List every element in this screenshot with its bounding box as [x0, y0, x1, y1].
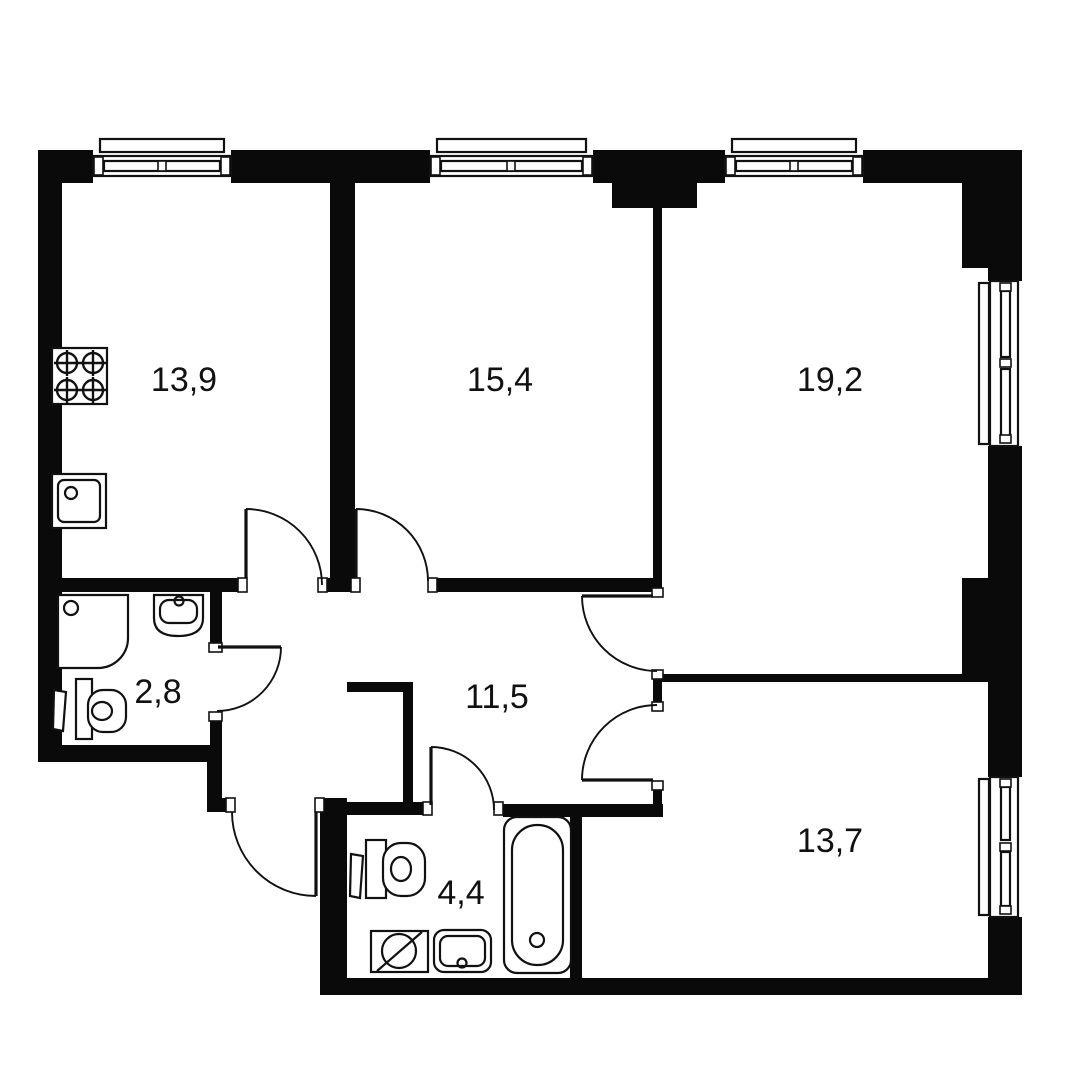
- towel-rail-icon: [53, 690, 66, 731]
- window-glazing: [1001, 787, 1010, 840]
- area-label-bathroom: 4,4: [437, 874, 484, 912]
- window-sill: [732, 139, 856, 152]
- door-entrance: [232, 812, 316, 896]
- wall-top-pier: [612, 183, 697, 208]
- wall-right-pier-top: [962, 150, 988, 268]
- wall-hall-bottom-b: [503, 804, 663, 817]
- window-sill: [979, 779, 989, 915]
- window-room-right: [725, 139, 863, 183]
- kitchen-sink-icon: [52, 474, 106, 528]
- window-room-right-side: [979, 281, 1022, 446]
- window-glazing: [1001, 852, 1010, 906]
- wall-bottom: [320, 978, 1022, 995]
- window-glazing: [1001, 369, 1010, 436]
- area-label-kitchen: 13,9: [151, 361, 217, 399]
- wall-lower-left-column: [320, 798, 347, 995]
- door-room-right: [582, 596, 657, 671]
- area-label-room-middle: 15,4: [467, 361, 533, 399]
- wall-hall-right-a: [653, 208, 662, 588]
- washing-machine-icon: [371, 931, 428, 972]
- window-glazing: [1001, 291, 1010, 357]
- toilet-icon: [76, 679, 126, 739]
- washbasin-icon: [434, 930, 491, 972]
- area-label-room-right: 19,2: [797, 361, 863, 399]
- window-kitchen: [93, 139, 231, 183]
- wall-hall-right-b: [653, 679, 662, 703]
- door-bathroom: [431, 747, 494, 810]
- shower-icon: [58, 595, 128, 668]
- wall-right-pier-mid: [962, 578, 988, 682]
- door-room-middle: [356, 509, 428, 581]
- floor-plan: 13,9 15,4 19,2 2,8 11,5 4,4 13,7: [0, 0, 1080, 1080]
- window-sill: [437, 139, 586, 152]
- door-shower-wc: [217, 647, 281, 711]
- washbasin-icon: [154, 595, 203, 636]
- wall-niche-vertical: [403, 692, 413, 815]
- wall-niche-horizontal: [347, 682, 413, 692]
- toilet-icon: [366, 840, 425, 898]
- area-label-hallway: 11,5: [465, 678, 529, 716]
- window-room-bottom-side: [979, 777, 1022, 917]
- bathtub-icon: [504, 817, 571, 973]
- window-sill: [979, 283, 989, 444]
- wall-kitchen-partition: [330, 183, 355, 592]
- floor-plan-canvas: 13,9 15,4 19,2 2,8 11,5 4,4 13,7: [0, 0, 1080, 1080]
- wall-left: [38, 150, 62, 762]
- room-labels: 13,9 15,4 19,2 2,8 11,5 4,4 13,7: [134, 361, 863, 912]
- window-sill: [100, 139, 224, 152]
- area-label-room-bottom: 13,7: [797, 822, 863, 860]
- wall-showerroom-bottom: [38, 745, 222, 762]
- window-room-middle: [430, 139, 593, 183]
- stove-icon: [52, 348, 107, 404]
- door-kitchen: [246, 509, 322, 585]
- wall-rooms-divider: [662, 674, 962, 682]
- wall-mid-horizontal-a: [38, 578, 238, 592]
- wall-showerroom-right-a: [210, 592, 222, 643]
- door-room-bottom: [582, 705, 657, 780]
- wall-showerroom-right-b: [210, 721, 222, 752]
- area-label-shower-wc: 2,8: [134, 673, 181, 711]
- wall-mid-horizontal-c: [437, 578, 662, 592]
- wall-entry-stub: [207, 798, 226, 812]
- towel-rail-icon: [350, 854, 363, 898]
